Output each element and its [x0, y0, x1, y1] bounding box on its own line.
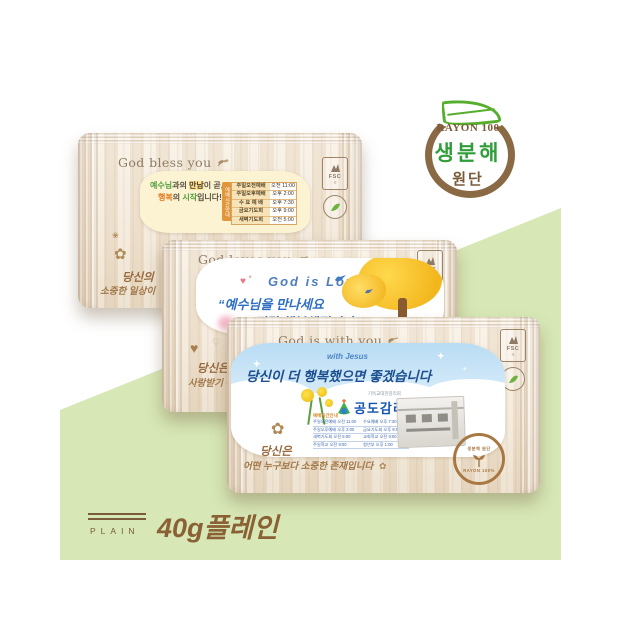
fsc-subtext: ®: [334, 181, 337, 185]
church-denomination-label: 기독교대한감리회: [337, 391, 432, 397]
flower-icon: ✿: [271, 419, 284, 439]
table-row: 새벽기도회 오전 5:00교회학교 오전 9:00: [313, 434, 409, 442]
building-window: [406, 415, 416, 423]
word: 만남: [189, 181, 204, 190]
stamp-bottom-text: RAYON 100%: [463, 468, 495, 473]
package-top-crimp: [162, 240, 457, 251]
church-photo: [396, 396, 466, 448]
heart-icon: ♥: [190, 340, 198, 356]
table-row: 금요기도회오후 9:00: [232, 208, 296, 216]
package-footer-line1: 당신은: [260, 443, 292, 459]
bird-icon: [364, 288, 374, 295]
building-ledge: [406, 427, 450, 432]
package-footer-line1: 당신은: [197, 360, 229, 376]
package-slogan: God bless you: [118, 155, 230, 170]
badge-biodegradable-label: 생분해: [422, 137, 514, 167]
word: 이 곧,: [204, 181, 223, 190]
table-row: 주일오후예배 오후 2:00금요기도회 오후 9:00: [313, 427, 409, 435]
leaf-vein: [447, 108, 495, 116]
word: 예수님: [150, 181, 172, 190]
plain-label: PLAIN: [90, 526, 140, 536]
word: 입니다!: [197, 193, 222, 202]
fsc-label: FSC: [507, 346, 520, 352]
sprig-icon: [216, 158, 230, 168]
dandelion-flower: [301, 389, 314, 402]
message-line2: 행복의 시작입니다!: [158, 192, 223, 204]
flower-icon: ✿: [379, 461, 387, 472]
with-jesus-label: with Jesus: [327, 352, 368, 361]
eco-leaf-icon: [323, 195, 347, 219]
product-photo: RAYON 100 생분해 원단 God bless you FSC® 예수님과…: [0, 0, 620, 620]
table-row: 주일학교 오전 9:00청년부 오후 1:00: [313, 442, 409, 450]
sticker-message: 예수님과의 만남이 곧, 행복의 시작입니다!: [150, 180, 223, 204]
message-line1: 예수님과의 만남이 곧,: [150, 180, 223, 192]
sparkle-icon: +: [463, 367, 467, 373]
word: 과의: [172, 181, 189, 190]
package-footer-line2: 소중한 일상이: [100, 283, 155, 297]
petal-icon: ❀: [112, 231, 119, 240]
table-row: 주일오후예배오후 2:00: [232, 191, 296, 199]
slogan-text: God bless you: [118, 155, 212, 170]
dandelion-stem: [307, 399, 312, 425]
package-footer-line2: 어떤 누구보다 소중한 존재입니다: [243, 458, 373, 472]
badge-text: RAYON 100 생분해 원단: [422, 122, 514, 189]
word: 시작: [182, 193, 197, 202]
fsc-label: FSC: [329, 174, 342, 180]
mini-schedule-table: 예배시간안내 주일오전예배 오전 11:00수요예배 오후 7:30 주일오후예…: [313, 413, 409, 449]
building-window: [438, 413, 448, 421]
table-row: 주일오전예배 오전 11:00수요예배 오후 7:30: [313, 419, 409, 427]
label-sticker-schedule: 예수님과의 만남이 곧, 행복의 시작입니다! 예배시간안내 주일오전예배오전 …: [140, 171, 310, 233]
happiness-message: 당신이 더 행복했으면 좋겠습니다: [246, 365, 431, 385]
package-left-pleat: [78, 133, 98, 308]
plain-mark-lines: [88, 513, 146, 523]
package-top-crimp: [227, 317, 540, 328]
word: 의: [173, 193, 183, 202]
heart-icon: ♥ ˚: [240, 276, 252, 287]
package-left-pleat: [162, 240, 182, 412]
rayon-stamp: 생분해 원단 RAYON 100%: [453, 433, 505, 485]
word: 행복: [158, 193, 173, 202]
bird-icon: [334, 274, 347, 283]
badge-fabric-label: 원단: [422, 168, 514, 189]
building-window: [422, 414, 432, 422]
badge-material-label: RAYON 100: [422, 122, 514, 134]
table-row: 수 요 예 배오후 7:30: [232, 200, 296, 208]
weight-label: 40g플레인: [157, 506, 278, 545]
package-top-crimp: [78, 133, 362, 144]
wipes-package-bottom: God is with you FSC® ✦ + ✦ + with Jesus …: [227, 317, 540, 493]
dandelion-flower: [325, 399, 333, 407]
fsc-icon: FSC®: [322, 157, 348, 190]
worship-schedule-table: 주일오전예배오전 11:00 주일오후예배오후 2:00 수 요 예 배오후 7…: [231, 182, 297, 225]
table-row: 새벽기도회오전 5:00: [232, 217, 296, 224]
sprout-icon: [472, 452, 486, 468]
dandelion-flower: [317, 387, 327, 397]
flower-icon: ✿: [114, 245, 127, 263]
worship-schedule-tab: 예배시간안내: [222, 182, 231, 221]
fsc-tree-icon: [329, 163, 341, 173]
fsc-tree-icon: [507, 335, 519, 345]
fsc-subtext: ®: [512, 353, 515, 357]
sparkle-icon: ✦: [437, 351, 445, 362]
heart-outline-icon: ♡: [212, 337, 220, 348]
sticker-line1: “예수님을 만나세요: [218, 294, 324, 313]
rayon-badge: RAYON 100 생분해 원단: [422, 100, 518, 200]
building-tower: [451, 401, 458, 439]
